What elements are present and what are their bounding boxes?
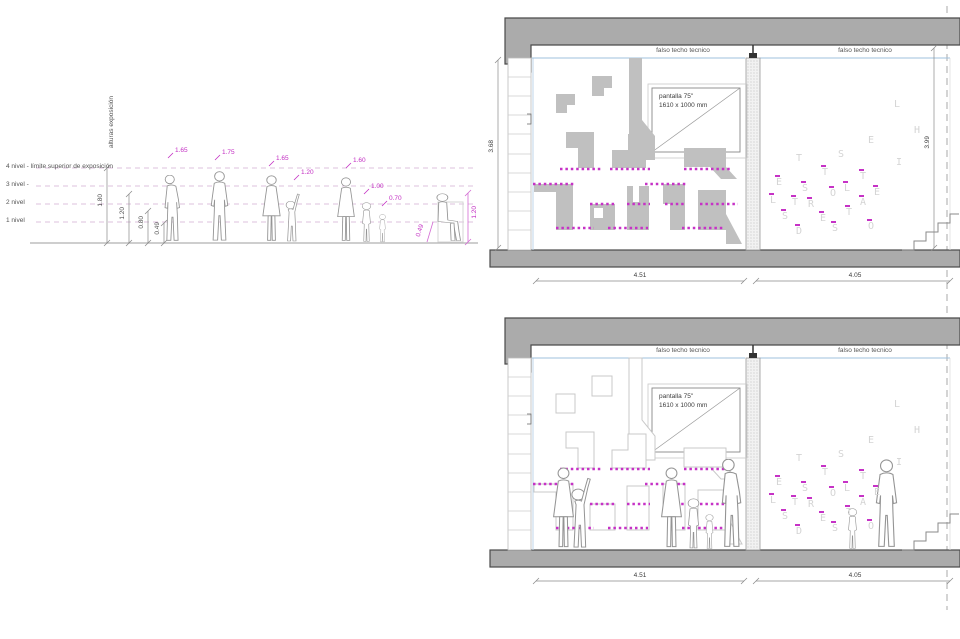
letter: E (874, 488, 880, 498)
letter: L (894, 400, 900, 410)
letter: E (868, 136, 874, 146)
dim-room-top-left: 4.51 (600, 272, 680, 279)
letter: A (860, 498, 866, 508)
letter: T (822, 168, 828, 178)
letter: E (868, 436, 874, 446)
letter: A (860, 198, 866, 208)
letter: E (776, 178, 782, 188)
section-top-exhibit-blocks (534, 58, 742, 244)
letter: L (844, 484, 850, 494)
architectural-section-sheet: alturas exposición 4 nivel - límite supe… (0, 0, 960, 639)
letter: O (830, 189, 836, 199)
letter: L (770, 496, 776, 506)
figure-child (362, 203, 371, 242)
letter: E (820, 514, 826, 524)
figure-woman (263, 176, 280, 240)
letter: E (820, 214, 826, 224)
ceiling-label-bottom-left: falso techo tecnico (608, 347, 758, 354)
figure-woman (662, 468, 682, 547)
ceiling-label-top-left: falso techo tecnico (608, 47, 758, 54)
figure-child-reaching (286, 194, 299, 241)
letter: S (802, 184, 808, 194)
letter: H (914, 426, 920, 436)
letter: L (770, 196, 776, 206)
figure-height-0-70: 0.70 (389, 195, 402, 202)
dim-height-top-left: 3.68 (488, 140, 495, 153)
figure-toddler (379, 214, 385, 241)
letter: E (776, 478, 782, 488)
level-label-3: 3 nivel - (6, 181, 29, 188)
screen-label-top-2: 1610 x 1000 mm (659, 102, 707, 109)
dim-0-80: 0.80 (138, 216, 145, 229)
letter: E (874, 188, 880, 198)
figure-child-reaching (572, 478, 590, 547)
letter: S (802, 484, 808, 494)
letter: T (792, 198, 798, 208)
letter: S (832, 524, 838, 534)
seated-eye-height: 1.20 (471, 206, 478, 219)
level-label-1: 1 nivel (6, 217, 25, 224)
dim-1-20: 1.20 (119, 207, 126, 220)
letter-wall-bottom: LHESTITETSLELOTRASETSDO (768, 394, 960, 566)
letter: T (860, 472, 866, 482)
screen-label-bottom-1: pantalla 75" (659, 393, 693, 400)
letter: R (808, 200, 814, 210)
dim-1-80: 1.80 (97, 194, 104, 207)
letter: T (846, 508, 852, 518)
figure-height-1-60: 1.60 (353, 157, 366, 164)
figure-height-1-65b: 1.65 (276, 155, 289, 162)
letter: D (796, 227, 802, 237)
letter: T (792, 498, 798, 508)
letter: O (868, 522, 874, 532)
letter: S (782, 212, 788, 222)
letter: T (796, 154, 802, 164)
letter: T (860, 172, 866, 182)
dim-room-bottom-right: 4.05 (815, 572, 895, 579)
dim-room-bottom-left: 4.51 (600, 572, 680, 579)
level-label-4: 4 nivel - límite superior de exposición (6, 163, 113, 170)
letter-wall-top: LHESTITETSLELOTRASETSDO (768, 94, 960, 266)
letter: L (844, 184, 850, 194)
letter: S (838, 150, 844, 160)
letter: O (868, 222, 874, 232)
figure-woman (554, 468, 574, 547)
figure-height-1-00: 1.00 (371, 183, 384, 190)
screen-label-top-1: pantalla 75" (659, 93, 693, 100)
letter: S (782, 512, 788, 522)
letter: I (896, 458, 902, 468)
letter: T (822, 468, 828, 478)
dim-0-49: 0.49 (154, 222, 161, 235)
axis-label-alturas: alturas exposición (108, 92, 115, 148)
figure-height-1-75: 1.75 (222, 149, 235, 156)
letter: I (896, 158, 902, 168)
figure-man (211, 172, 228, 240)
letter: D (796, 527, 802, 537)
letter: H (914, 126, 920, 136)
figure-man-looking-up (165, 175, 179, 240)
letter: L (894, 100, 900, 110)
dim-room-top-right: 4.05 (815, 272, 895, 279)
figure-toddler (706, 515, 713, 549)
letter: S (838, 450, 844, 460)
letter: R (808, 500, 814, 510)
figure-child (688, 499, 699, 548)
screen-label-bottom-2: 1610 x 1000 mm (659, 402, 707, 409)
figure-height-1-20: 1.20 (301, 169, 314, 176)
letter: S (832, 224, 838, 234)
figure-woman (338, 178, 355, 241)
figure-man-seated (437, 194, 461, 241)
letter: T (846, 208, 852, 218)
level-label-2: 2 nivel (6, 199, 25, 206)
letter: T (796, 454, 802, 464)
figure-height-1-65: 1.65 (175, 147, 188, 154)
ceiling-label-bottom-right: falso techo tecnico (790, 347, 940, 354)
letter: O (830, 489, 836, 499)
ceiling-label-top-right: falso techo tecnico (790, 47, 940, 54)
